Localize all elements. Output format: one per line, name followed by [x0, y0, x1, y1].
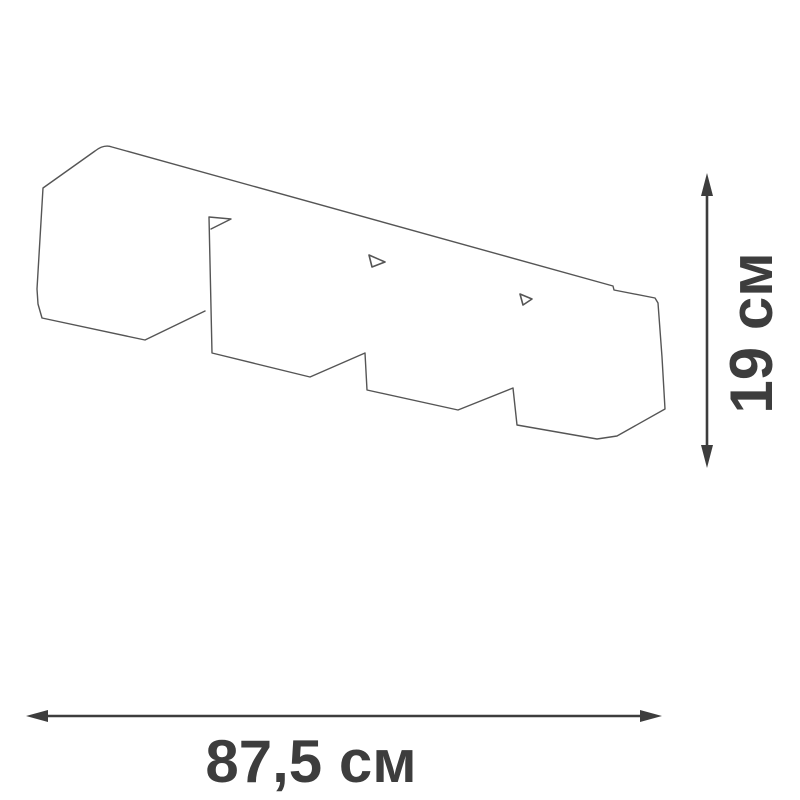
arrow-left-icon — [26, 710, 48, 722]
fixture-drawing — [0, 0, 800, 800]
fixture-outline — [37, 146, 665, 439]
height-dimension-arrow — [701, 173, 713, 468]
dimension-diagram: 87,5 см 19 см — [0, 0, 800, 800]
detail-triangle-icon — [369, 255, 385, 267]
height-dimension-label: 19 см — [722, 252, 782, 413]
arrow-right-icon — [640, 710, 662, 722]
width-dimension-label: 87,5 см — [205, 732, 416, 792]
arrow-up-icon — [701, 173, 713, 196]
arrow-down-icon — [701, 445, 713, 468]
width-dimension-arrow — [26, 710, 662, 722]
detail-triangle-icon — [520, 294, 532, 305]
